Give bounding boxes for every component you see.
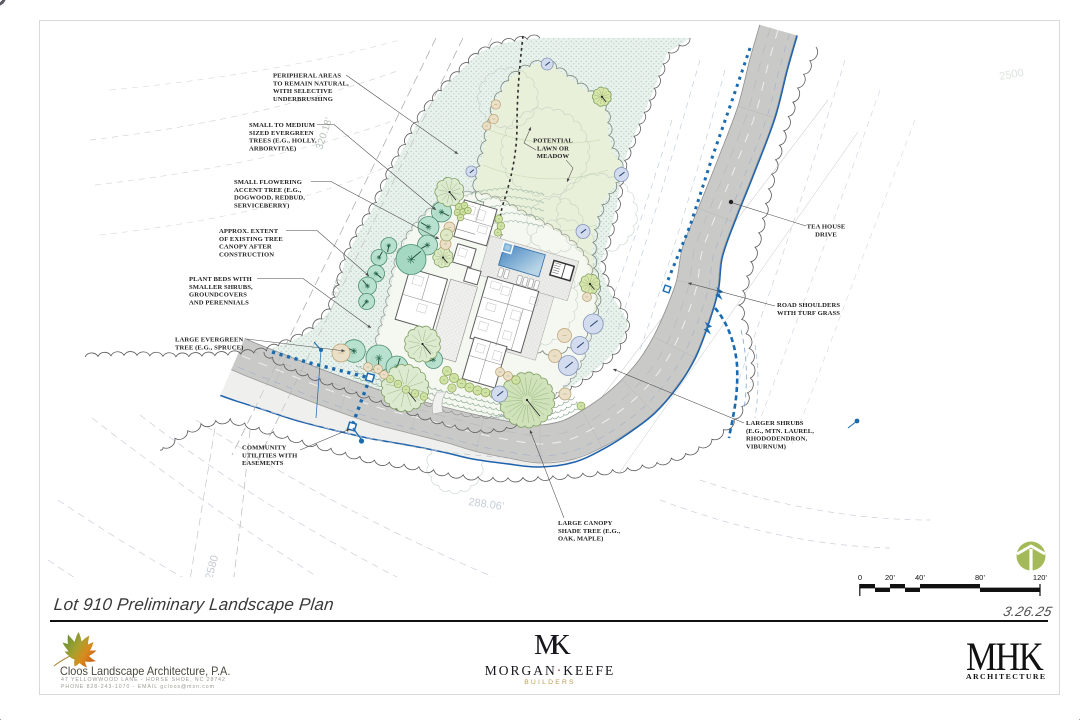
svg-text:20’: 20’: [885, 573, 895, 582]
svg-text:80’: 80’: [975, 573, 985, 582]
svg-text:120’: 120’: [1033, 573, 1048, 582]
svg-text:ROAD SHOULDERSWITH TURF GRASS: ROAD SHOULDERSWITH TURF GRASS: [777, 302, 840, 317]
svg-text:LARGE EVERGREENTREE (E.G., SPR: LARGE EVERGREENTREE (E.G., SPRUCE): [175, 337, 244, 352]
svg-text:POTENTIALLAWN ORMEADOW: POTENTIALLAWN ORMEADOW: [533, 138, 573, 161]
svg-text:0: 0: [858, 573, 862, 582]
svg-text:40’: 40’: [915, 573, 925, 582]
svg-text:PLANT BEDS WITHSMALLER SHRUBS,: PLANT BEDS WITHSMALLER SHRUBS,GROUNDCOVE…: [189, 276, 253, 306]
svg-text:3.26.25: 3.26.25: [1002, 604, 1054, 619]
